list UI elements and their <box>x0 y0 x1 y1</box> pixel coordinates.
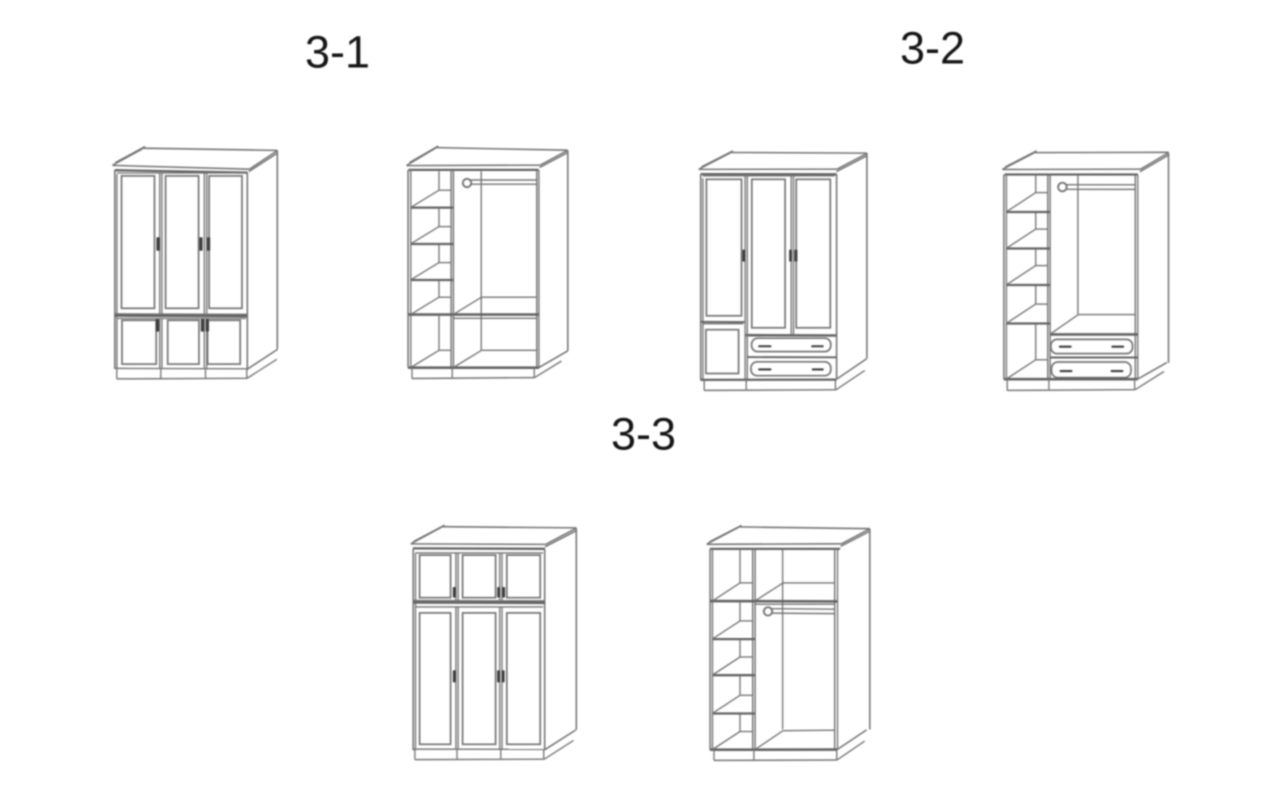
svg-text:3-3: 3-3 <box>611 409 676 460</box>
svg-text:3-1: 3-1 <box>305 27 370 78</box>
svg-text:3-2: 3-2 <box>900 23 965 74</box>
